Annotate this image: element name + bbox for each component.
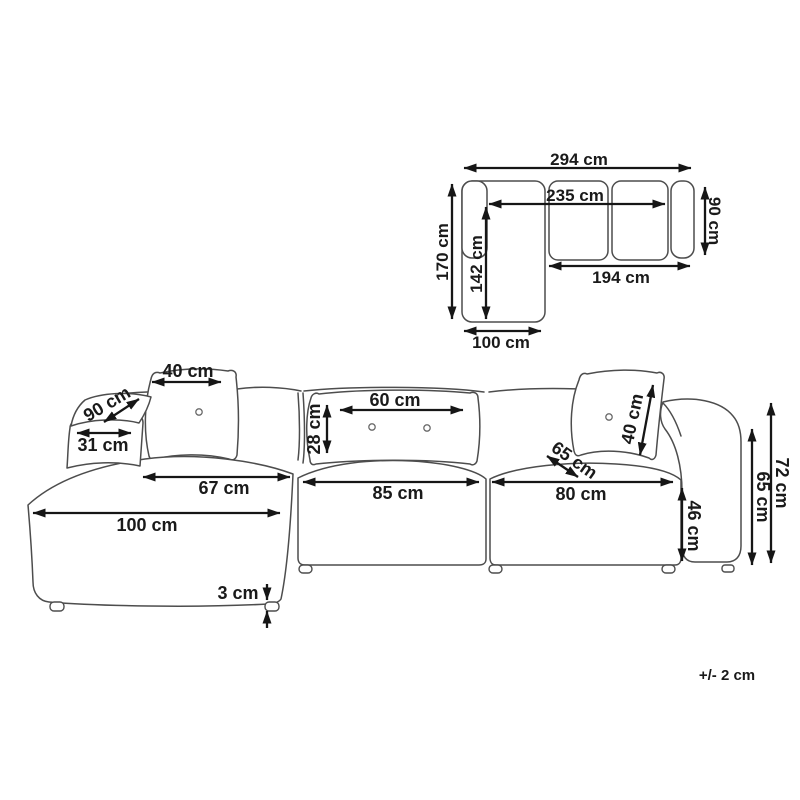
dim-label-right-seat-width: 80 cm <box>555 484 606 504</box>
plan-dim-seat-front-length: 194 cm <box>549 266 690 287</box>
cushion-button-icon <box>196 409 202 415</box>
plan-right-armrest <box>671 181 694 258</box>
dim-label-overall-depth: 170 cm <box>433 223 452 281</box>
cushion-button-icon <box>606 414 612 420</box>
dim-label-inner-width: 235 cm <box>546 186 604 205</box>
cushion-button-icon <box>369 424 375 430</box>
cushion-button-icon <box>424 425 430 431</box>
sofa-foot <box>662 565 675 573</box>
plan-dim-overall-depth: 170 cm <box>433 184 452 319</box>
sofa-foot <box>299 565 312 573</box>
front-back-edge-module-1 <box>237 387 301 391</box>
plan-dim-overall-width: 294 cm <box>464 150 691 169</box>
front-dim-total-height: 72 cm <box>771 403 792 563</box>
front-dim-center-cushion-height: 28 cm <box>304 403 327 454</box>
dim-label-left-cushion-width: 40 cm <box>162 361 213 381</box>
front-dim-left-arm-width: 31 cm <box>77 433 131 455</box>
dim-label-seat-front-length: 194 cm <box>592 268 650 287</box>
dim-label-overall-width: 294 cm <box>550 150 608 169</box>
plan-seat-module-3 <box>612 181 668 260</box>
dim-label-center-seat-width: 85 cm <box>372 483 423 503</box>
dim-label-total-height: 72 cm <box>772 457 792 508</box>
dim-label-chaise-width: 100 cm <box>472 333 530 352</box>
plan-dim-side-depth: 90 cm <box>705 187 724 255</box>
sofa-foot <box>489 565 502 573</box>
tolerance-note: +/- 2 cm <box>699 667 755 684</box>
plan-view: 294 cm 235 cm 90 cm 170 cm 142 cm 194 cm… <box>433 150 724 352</box>
dim-label-seat-height: 46 cm <box>684 500 704 551</box>
sofa-dimension-diagram: 294 cm 235 cm 90 cm 170 cm 142 cm 194 cm… <box>0 0 800 800</box>
dim-label-chaise-inner-length: 142 cm <box>467 235 486 293</box>
dim-label-left-arm-width: 31 cm <box>77 435 128 455</box>
sofa-foot <box>722 565 734 572</box>
dim-label-foot-height: 3 cm <box>217 583 258 603</box>
dim-label-side-depth: 90 cm <box>705 197 724 245</box>
dim-label-left-seat-width: 67 cm <box>198 478 249 498</box>
dim-label-chaise-length: 100 cm <box>116 515 177 535</box>
sofa-foot <box>265 602 279 611</box>
front-seat-module-2 <box>298 461 486 565</box>
front-view: 40 cm 90 cm 31 cm 67 cm 100 cm 3 cm 60 c… <box>28 361 792 628</box>
plan-dim-chaise-width: 100 cm <box>464 331 541 352</box>
dim-label-center-cushion-height: 28 cm <box>304 403 324 454</box>
dim-label-center-cushion-width: 60 cm <box>369 390 420 410</box>
front-seam-module-1-2 <box>298 393 300 460</box>
front-right-cushion <box>571 370 664 459</box>
front-dim-left-cushion-width: 40 cm <box>152 361 221 382</box>
sofa-foot <box>50 602 64 611</box>
